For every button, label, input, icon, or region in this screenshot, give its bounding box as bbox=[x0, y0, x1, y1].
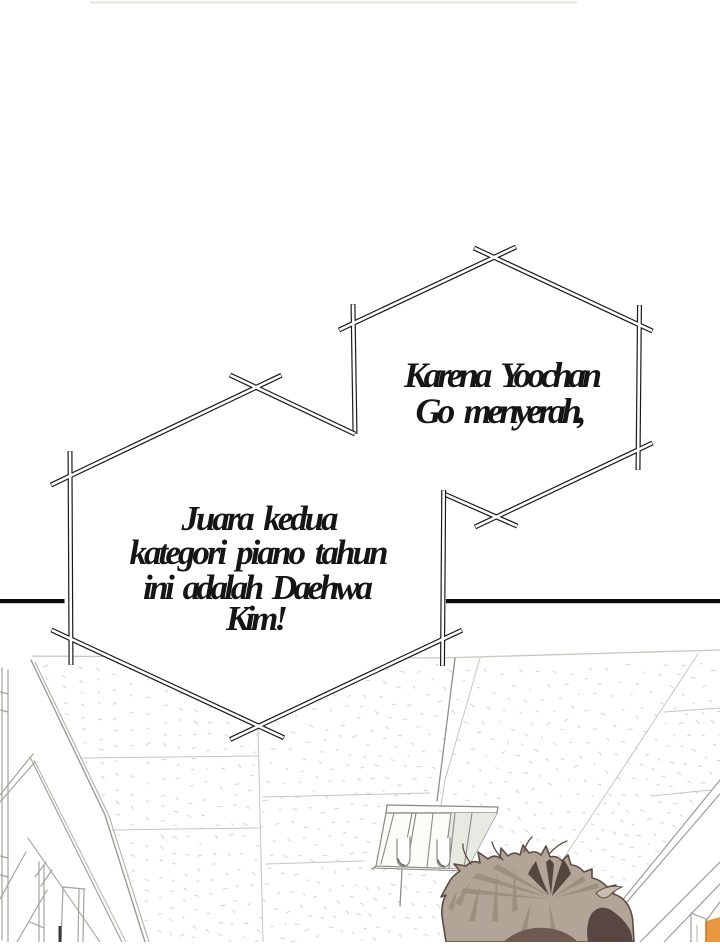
svg-text:Go menyerah,: Go menyerah, bbox=[416, 391, 587, 431]
svg-text:kategori piano tahun: kategori piano tahun bbox=[130, 533, 389, 572]
svg-text:Karena Yoochan: Karena Yoochan bbox=[403, 355, 602, 395]
svg-text:Kim!: Kim! bbox=[225, 599, 288, 638]
